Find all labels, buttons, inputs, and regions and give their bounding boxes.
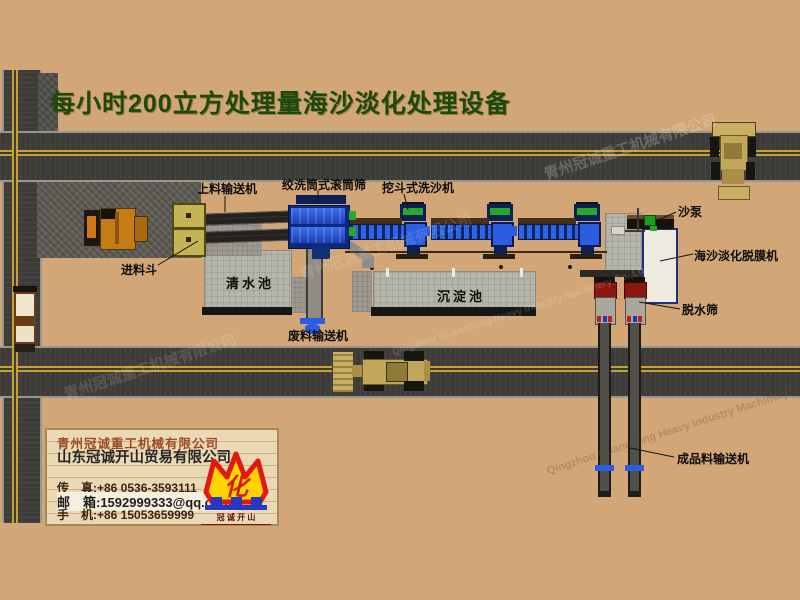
screen-dot-blue <box>633 316 637 322</box>
drum-1 <box>291 208 345 224</box>
drum-screen-machine <box>286 195 356 261</box>
loader-wheel <box>711 162 720 180</box>
loader-tail <box>718 186 750 200</box>
drum-motor <box>349 211 356 220</box>
conveyor-crossbar <box>625 465 644 471</box>
dewatering-screen-1 <box>594 277 615 503</box>
washer-motor-green <box>577 208 597 215</box>
clean-water-pool-edge <box>202 307 292 315</box>
washer-bucket-chain <box>518 224 580 240</box>
washer-motor-green <box>403 208 423 215</box>
sand-pump <box>644 215 656 226</box>
logo-caption: 冠 诚 开 山 <box>201 512 271 525</box>
washer-wheel <box>578 222 601 247</box>
label-feed-hopper: 进料斗 <box>121 261 157 278</box>
washer-pad <box>570 254 602 259</box>
washer-pad <box>396 254 428 259</box>
bucket-washer-3 <box>518 202 606 258</box>
contact-mobile: 手 机:+86 15053659999 <box>57 506 194 523</box>
logo-base-block <box>251 497 262 505</box>
conveyor-crossbar <box>595 465 614 471</box>
hopper-divider <box>174 227 204 230</box>
wheel-loader-bottom <box>332 349 430 393</box>
loader-stripe <box>115 212 119 244</box>
loader-wheel <box>710 137 719 157</box>
label-product-conveyor: 成品料输送机 <box>677 450 749 467</box>
washer-chain-cap <box>423 226 430 236</box>
bucket-washer-2 <box>431 202 519 258</box>
screen-dot-red <box>638 316 642 322</box>
label-sediment-pool: 沉淀池 <box>437 286 485 305</box>
truck-cargo <box>14 324 36 344</box>
crown-logo-graphic: 化 <box>197 450 275 512</box>
sediment-pool-edge <box>371 307 536 316</box>
loader-cab <box>724 143 742 159</box>
pipe-elbow <box>611 226 625 235</box>
loader-rear <box>424 361 430 381</box>
crown-glyph: 化 <box>224 474 252 501</box>
anchor-bolt <box>499 265 503 269</box>
drum-screen-top-bar <box>296 195 346 204</box>
diagram-canvas: 每小时200立方处理量海沙淡化处理设备 青州冠诚重工机械有限公司 青州冠诚重工机… <box>0 0 800 600</box>
loader-bucket <box>332 351 354 393</box>
conveyor-endcap <box>628 491 641 497</box>
screen-dot-red <box>627 316 631 322</box>
washer-support <box>494 245 507 254</box>
washer-support <box>407 245 420 254</box>
drum-2 <box>291 227 345 243</box>
label-waste-conveyor: 废料输送机 <box>288 327 348 344</box>
logo-base-bar <box>205 505 267 510</box>
sand-pump-outlet <box>650 226 657 231</box>
label-clean-water-pool: 清水池 <box>226 273 274 292</box>
label-desalination-machine: 海沙淡化脱膜机 <box>694 247 778 264</box>
conveyor-endcap <box>598 491 611 497</box>
loader-cab <box>386 362 408 382</box>
label-dewatering-screen: 脱水筛 <box>682 301 718 318</box>
hopper-bolt <box>186 237 191 242</box>
drum-motor <box>349 227 356 236</box>
anchor-bolt <box>568 265 572 269</box>
label-feed-conveyor: 上料输送机 <box>197 180 257 197</box>
yard-loader <box>84 206 146 250</box>
wheel-loader-top <box>708 122 758 198</box>
company-info-box: 青州冠诚重工机械有限公司 山东冠诚开山贸易有限公司 传 真:+86 0536-3… <box>45 428 279 526</box>
logo-base-block <box>211 497 222 505</box>
loader-engine-glow <box>87 216 96 238</box>
washer-bucket-chain <box>431 224 493 240</box>
washer-motor-green <box>490 208 510 215</box>
feed-hopper <box>172 203 206 257</box>
truck-left-road <box>13 286 37 352</box>
foundation-pad <box>352 271 372 312</box>
screen-dot-red <box>608 316 612 322</box>
hopper-bolt <box>186 213 191 218</box>
washer-chain-cap <box>510 226 517 236</box>
logo-base-block <box>231 497 242 505</box>
washer-pad <box>483 254 515 259</box>
desalination-machine <box>642 228 678 304</box>
pump-pipe-v <box>637 208 639 232</box>
truck-rear <box>15 344 35 352</box>
drum-support <box>312 247 330 259</box>
road-top-centerline <box>0 150 800 156</box>
label-drum-screen: 绞洗筒式滚筒筛 <box>282 176 366 193</box>
loader-wheel <box>746 162 755 180</box>
screen-dot-blue <box>603 316 607 322</box>
loader-rear <box>722 169 744 184</box>
loader-wheel <box>404 351 424 361</box>
loader-wheel <box>747 137 756 157</box>
screen-dot-red <box>597 316 601 322</box>
loader-arm <box>134 216 148 242</box>
company-logo: 化 冠 诚 开 山 <box>197 450 275 524</box>
loader-wheel <box>404 381 424 391</box>
washer-support <box>581 245 594 254</box>
page-title: 每小时200立方处理量海沙淡化处理设备 <box>50 84 511 120</box>
dewatering-screen-2 <box>624 277 645 503</box>
road-top <box>0 131 800 182</box>
bucket-washer-1 <box>344 202 432 258</box>
truck-cab <box>14 292 36 318</box>
loader-cab-roof <box>101 209 116 219</box>
label-bucket-washer: 挖斗式洗沙机 <box>382 179 454 196</box>
label-sand-pump: 沙泵 <box>678 203 702 220</box>
